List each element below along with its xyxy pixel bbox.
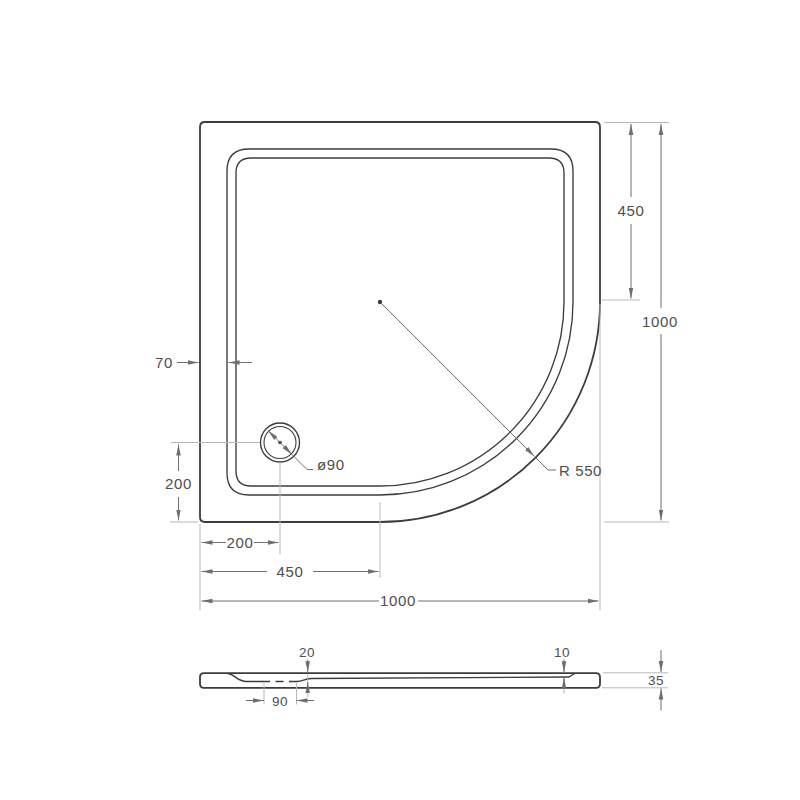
dim-label-70: 70 bbox=[155, 354, 173, 371]
dim-basin-depth-20: 20 bbox=[299, 645, 315, 690]
dim-label-20: 20 bbox=[299, 645, 315, 660]
dim-label-90: 90 bbox=[272, 694, 288, 709]
profile-basin-descent bbox=[228, 674, 262, 682]
dim-overall-height-35: 35 bbox=[648, 650, 664, 711]
leader-corner-radius: R 550 bbox=[382, 304, 603, 480]
side-view: 20 10 90 35 bbox=[200, 645, 668, 711]
dim-drain-recess-90: 90 bbox=[246, 694, 314, 709]
profile-outline bbox=[200, 673, 600, 688]
dim-bottom-1000: 1000 bbox=[202, 592, 599, 609]
dim-label-1000-right: 1000 bbox=[642, 313, 678, 330]
dim-label-450-bottom: 450 bbox=[277, 563, 304, 580]
dim-rim-70: 70 bbox=[155, 354, 252, 371]
label-drain-diameter: ø90 bbox=[317, 456, 345, 473]
dim-label-1000-bottom: 1000 bbox=[380, 592, 416, 609]
dim-label-200-bottom: 200 bbox=[227, 534, 254, 551]
dim-bottom-450: 450 bbox=[202, 563, 379, 580]
dim-edge-depth-10: 10 bbox=[554, 645, 570, 686]
top-view: 450 1000 70 200 200 bbox=[155, 122, 678, 610]
label-corner-radius: R 550 bbox=[559, 462, 602, 479]
dim-bottom-200: 200 bbox=[202, 534, 279, 551]
shower-tray-technical-drawing: 450 1000 70 200 200 bbox=[0, 0, 800, 800]
dim-label-200-left: 200 bbox=[165, 475, 192, 492]
dim-label-450-right: 450 bbox=[618, 202, 645, 219]
dim-right-inner-450: 450 bbox=[618, 124, 645, 299]
dim-right-overall-1000: 1000 bbox=[642, 124, 678, 521]
dim-label-35: 35 bbox=[648, 673, 664, 688]
profile-basin-floor bbox=[297, 674, 575, 682]
dim-left-200: 200 bbox=[165, 445, 192, 521]
leader-drain-diameter: ø90 bbox=[268, 431, 345, 474]
dim-label-10: 10 bbox=[554, 645, 570, 660]
